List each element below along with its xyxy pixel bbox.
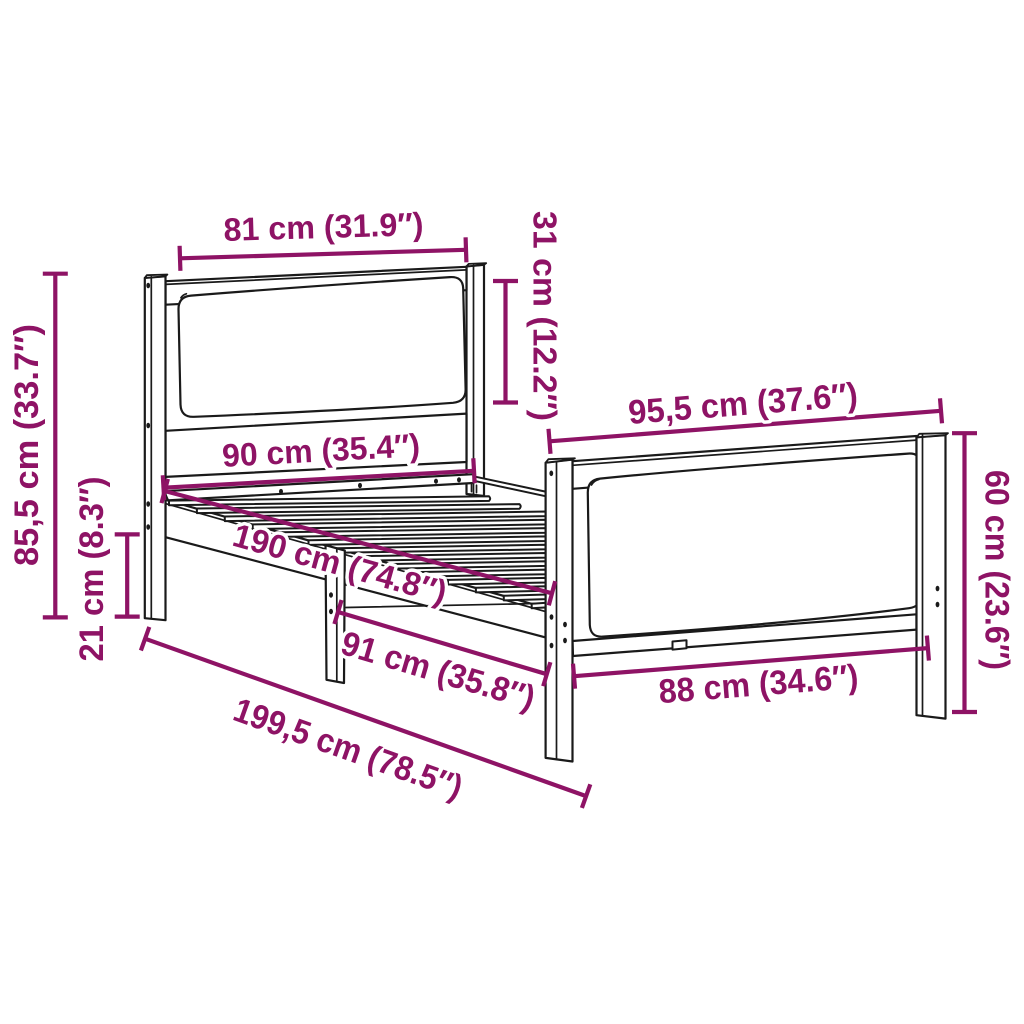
svg-text:60 cm (23.6″): 60 cm (23.6″) xyxy=(978,470,1016,670)
svg-text:81 cm (31.9″): 81 cm (31.9″) xyxy=(223,206,424,248)
svg-text:85,5 cm (33.7″): 85,5 cm (33.7″) xyxy=(8,324,46,566)
svg-text:21 cm (8.3″): 21 cm (8.3″) xyxy=(73,477,111,662)
svg-text:31 cm (12.2″): 31 cm (12.2″) xyxy=(527,211,564,421)
